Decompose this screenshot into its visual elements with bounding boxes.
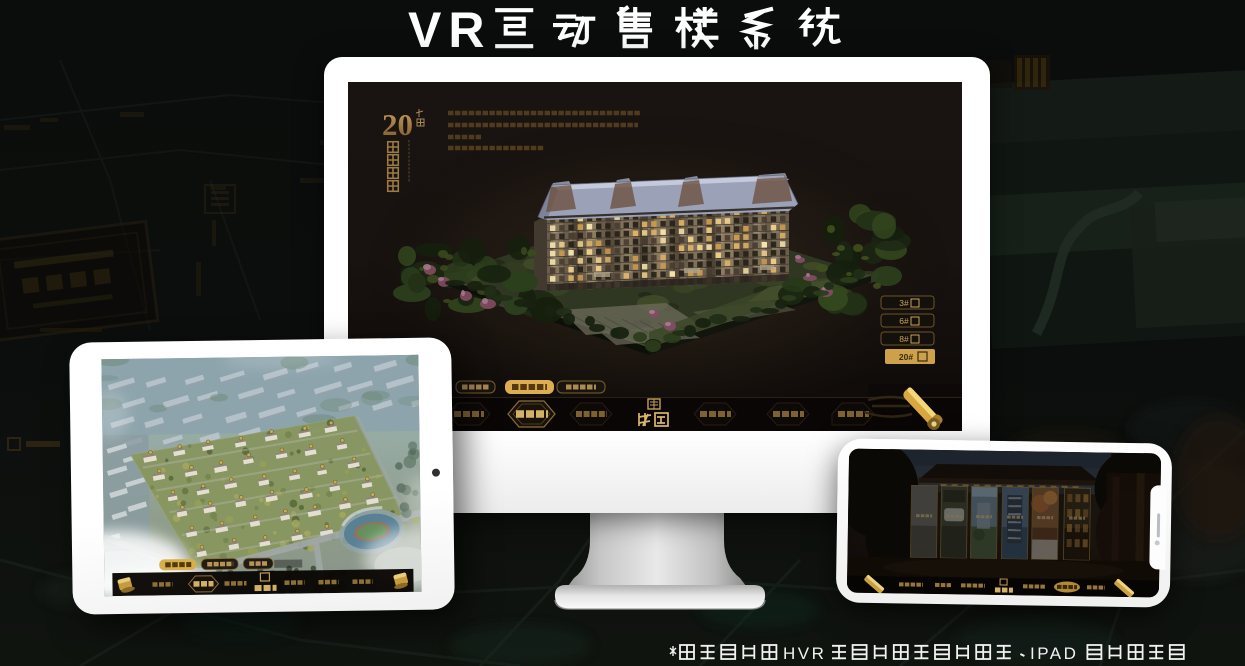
svg-text:3#: 3# (899, 298, 909, 308)
svg-text:VR: VR (408, 2, 491, 58)
svg-text:20: 20 (382, 107, 413, 142)
svg-text:HVR: HVR (783, 644, 826, 663)
svg-text:20#: 20# (899, 352, 913, 362)
svg-text:IPAD: IPAD (1030, 644, 1078, 663)
svg-text:6#: 6# (899, 316, 909, 326)
svg-text:8#: 8# (899, 334, 909, 344)
